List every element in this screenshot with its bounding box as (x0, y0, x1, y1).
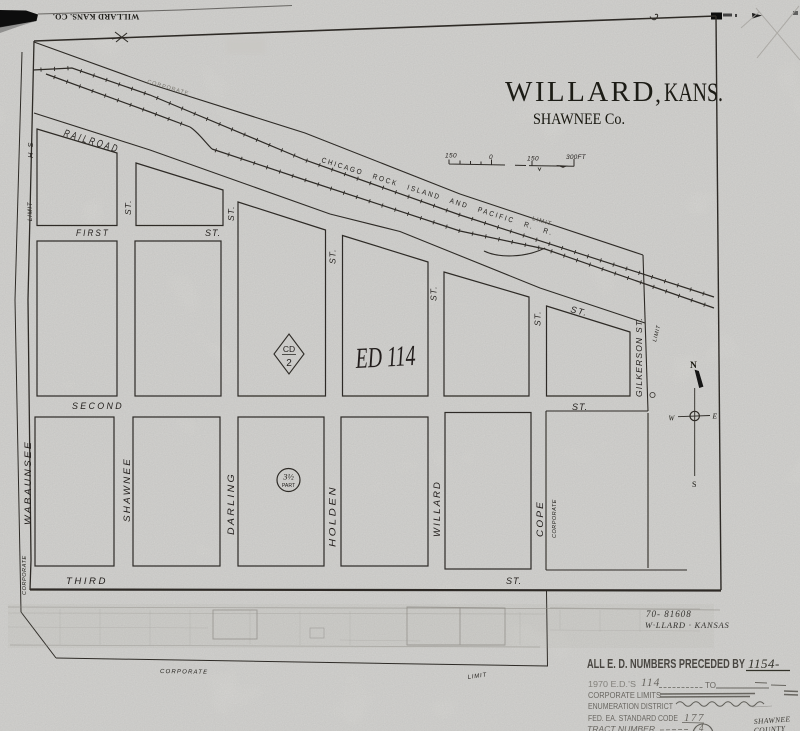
svg-text:ENUMERATION DISTRICT: ENUMERATION DISTRICT (588, 702, 673, 711)
svg-text:ST.: ST. (533, 311, 543, 326)
svg-text:70- 81608: 70- 81608 (646, 609, 692, 619)
svg-text:150: 150 (445, 153, 457, 160)
svg-text:ST.: ST. (123, 200, 133, 215)
svg-text:SHAWNEE: SHAWNEE (122, 457, 132, 522)
svg-text:FIRST: FIRST (76, 228, 110, 239)
svg-text:ST.: ST. (429, 286, 439, 301)
svg-text:ST.: ST. (205, 228, 221, 238)
svg-text:ST.: ST. (226, 206, 236, 221)
svg-text:N: N (690, 361, 697, 371)
svg-text:150: 150 (527, 156, 539, 163)
svg-text:KANS.: KANS. (664, 78, 723, 107)
svg-text:ST.: ST. (506, 576, 522, 586)
svg-text:CORPORATE LIMITS: CORPORATE LIMITS (588, 691, 661, 700)
svg-text:300FT: 300FT (566, 154, 587, 161)
svg-text:CD: CD (283, 344, 295, 354)
svg-text:WABAUNSEE: WABAUNSEE (23, 440, 33, 525)
svg-text:SHAWNEE Co.: SHAWNEE Co. (533, 111, 625, 128)
svg-text:0: 0 (489, 154, 493, 161)
svg-text:4: 4 (699, 723, 704, 731)
svg-text:TRACT NUMBER: TRACT NUMBER (587, 724, 655, 731)
svg-text:CORPORATE: CORPORATE (552, 499, 558, 538)
svg-text:SECOND: SECOND (72, 401, 124, 412)
svg-text:WILLARD KANS. CO.: WILLARD KANS. CO. (53, 12, 140, 21)
svg-text:LIMIT: LIMIT (28, 201, 34, 221)
svg-text:DARLING: DARLING (226, 472, 236, 535)
svg-text:CORPORATE: CORPORATE (22, 555, 28, 595)
svg-text:ED 114: ED 114 (354, 340, 416, 375)
svg-text:1970 E.D.’S: 1970 E.D.’S (588, 680, 636, 689)
svg-text:ST.: ST. (572, 402, 588, 412)
svg-text:S: S (692, 480, 696, 489)
svg-text:TO: TO (705, 681, 716, 690)
svg-text:ST.: ST. (328, 249, 338, 264)
svg-text:3½: 3½ (282, 472, 294, 482)
svg-text:2: 2 (286, 358, 292, 369)
svg-text:E: E (712, 412, 718, 421)
svg-text:,: , (655, 82, 661, 108)
svg-text:COPE: COPE (535, 500, 545, 537)
svg-text:FED. EA. STANDARD CODE: FED. EA. STANDARD CODE (588, 714, 678, 723)
svg-text:THIRD: THIRD (66, 576, 108, 587)
svg-text:CORPORATE: CORPORATE (160, 669, 208, 676)
svg-text:1154-: 1154- (748, 656, 780, 671)
svg-text:WILLARD: WILLARD (505, 76, 656, 108)
svg-text:H S: H S (26, 141, 35, 158)
svg-text:ALL E. D. NUMBERS PRECEDED BY: ALL E. D. NUMBERS PRECEDED BY (587, 656, 745, 671)
svg-text:HOLDEN: HOLDEN (328, 485, 338, 547)
svg-text:COUNTY: COUNTY (754, 724, 787, 731)
svg-text:W·LLARD · KANSAS: W·LLARD · KANSAS (645, 620, 730, 630)
svg-text:GILKERSON ST.: GILKERSON ST. (634, 317, 644, 397)
svg-text:114: 114 (641, 677, 660, 689)
svg-text:PART: PART (282, 483, 296, 489)
svg-text:WILLARD: WILLARD (432, 480, 442, 537)
